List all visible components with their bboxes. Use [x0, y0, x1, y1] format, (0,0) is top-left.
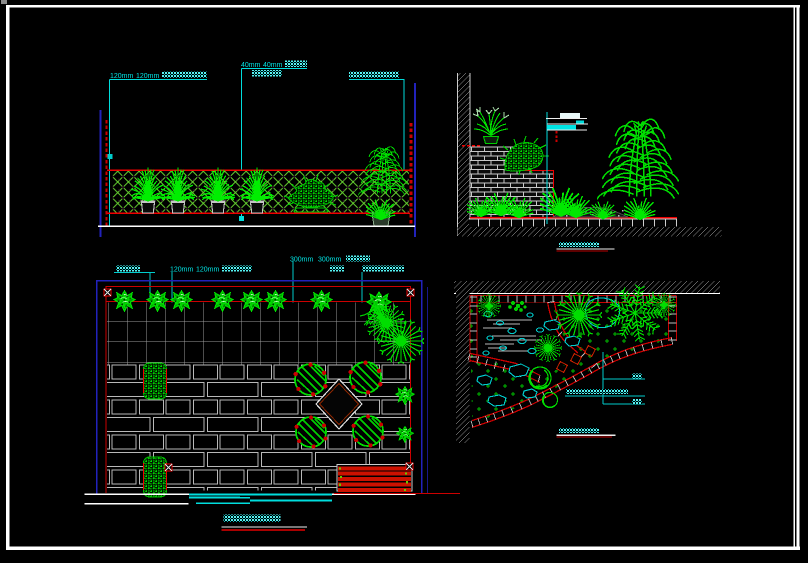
svg-text:120mm: 120mm: [196, 267, 220, 274]
svg-text:120mm: 120mm: [110, 73, 134, 80]
svg-text:120mm: 120mm: [170, 267, 194, 274]
svg-text:40mm: 40mm: [263, 62, 283, 69]
svg-text:300mm: 300mm: [318, 257, 342, 264]
svg-text:300mm: 300mm: [290, 257, 314, 264]
svg-text:40mm: 40mm: [241, 62, 261, 69]
svg-text:120mm: 120mm: [136, 73, 160, 80]
